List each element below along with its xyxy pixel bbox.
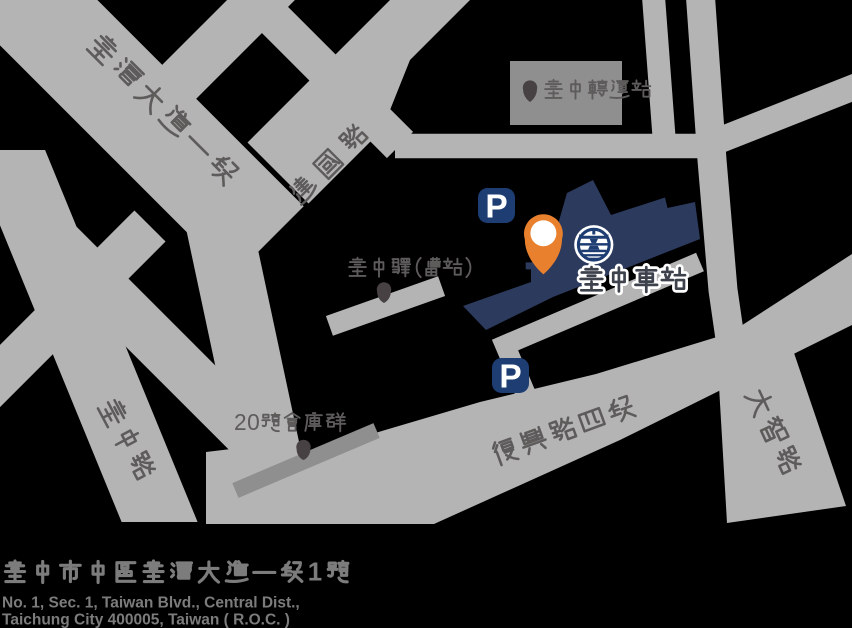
svg-text:Taichung City 400005, Taiwan (: Taichung City 400005, Taiwan ( R.O.C. ) <box>2 612 290 628</box>
svg-text:P: P <box>499 358 521 395</box>
svg-text:P: P <box>485 188 507 225</box>
svg-text:0: 0 <box>247 409 260 435</box>
svg-text:2: 2 <box>234 409 247 435</box>
svg-text:No. 1, Sec. 1, Taiwan Blvd., C: No. 1, Sec. 1, Taiwan Blvd., Central Dis… <box>2 595 300 612</box>
svg-text:1: 1 <box>308 559 322 587</box>
